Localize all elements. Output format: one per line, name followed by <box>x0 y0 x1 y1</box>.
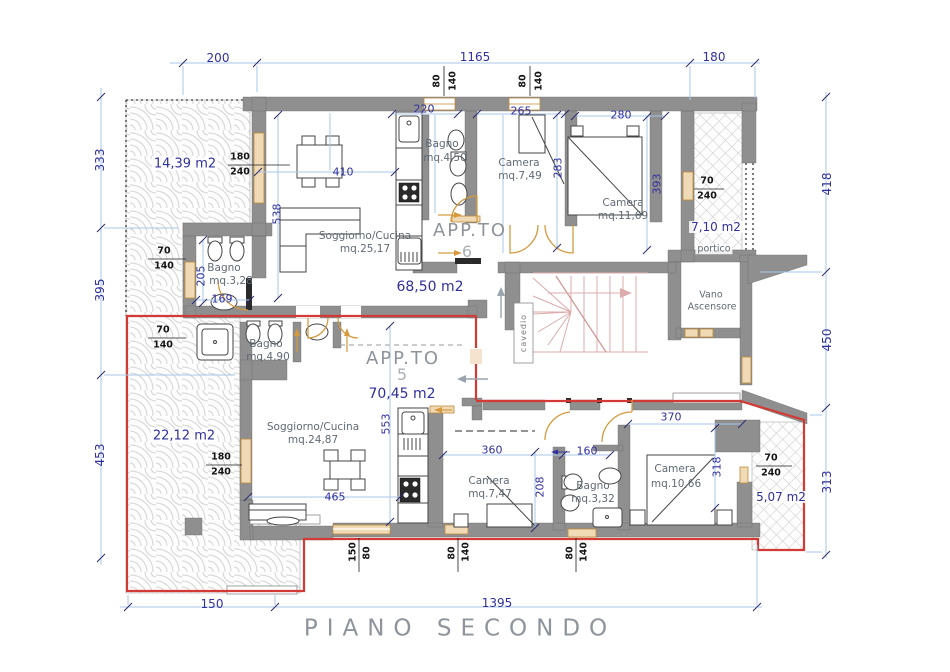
dim-465: 465 <box>325 492 346 503</box>
winspec: 140 <box>448 71 458 91</box>
dim-208: 208 <box>535 477 546 498</box>
room-soggiorno5: Soggiorno/Cucina <box>267 422 359 433</box>
winspec: 80 <box>565 546 575 559</box>
floor-plan-drawing <box>0 0 950 672</box>
balcony-wedge-upper <box>748 255 807 284</box>
shower-bagno332 <box>593 508 622 527</box>
winspec: 240 <box>211 467 231 477</box>
page-title: PIANO SECONDO <box>304 618 616 641</box>
elevator-door <box>685 329 698 337</box>
dim-top-200: 200 <box>207 52 230 64</box>
winspec: 140 <box>534 71 544 91</box>
winspec: 80 <box>362 546 372 559</box>
dim-right-418: 418 <box>821 173 833 196</box>
apt5-area: 70,45 m2 <box>368 387 435 401</box>
room-camera1066: Camera <box>654 464 695 475</box>
winspec: 140 <box>154 261 174 271</box>
dim-left-333: 333 <box>94 149 106 172</box>
winspec: 180 <box>230 152 250 162</box>
apt5-entrance-opening <box>470 349 482 364</box>
toilet-bagno328 <box>208 241 222 261</box>
dim-393: 393 <box>652 174 663 195</box>
kitchen-sink <box>399 116 419 142</box>
winspec: 140 <box>153 340 173 350</box>
winspec: 70 <box>700 176 713 186</box>
terrace-sw-area: 22,12 m2 <box>151 430 217 443</box>
winspec: 240 <box>759 468 783 478</box>
apt6-area: 68,50 m2 <box>396 280 463 294</box>
winspec: 180 <box>211 452 231 462</box>
room-bagno328: Bagno <box>207 263 240 274</box>
dim-bottom-150: 150 <box>201 598 224 610</box>
room-camera749: Camera <box>498 158 539 169</box>
winspec: 80 <box>447 546 457 559</box>
dim-370: 370 <box>661 412 682 423</box>
room-camera1169: Camera <box>602 198 643 209</box>
apt6-number: 6 <box>462 244 472 260</box>
winspec: 70 <box>762 453 779 463</box>
winspec: 70 <box>156 325 169 335</box>
room-bagno450: Bagno <box>425 139 458 150</box>
apt6-title: APP.TO <box>433 222 507 240</box>
dim-left-395: 395 <box>94 279 106 302</box>
winspec: 150 <box>348 542 358 562</box>
winspec: 80 <box>518 74 528 87</box>
winspec: 240 <box>230 167 250 177</box>
winspec: 80 <box>432 74 442 87</box>
door-camera1169 <box>545 225 573 253</box>
dim-right-450: 450 <box>821 329 833 352</box>
door-camera747 <box>545 412 570 440</box>
dim-538: 538 <box>272 204 283 225</box>
winspec: 70 <box>157 246 170 256</box>
room-bagno332: Bagno <box>576 481 609 492</box>
dim-169: 169 <box>212 294 233 305</box>
room-camera747: Camera <box>468 476 509 487</box>
apt5-number: 5 <box>397 367 407 383</box>
dim-top-1165: 1165 <box>460 51 491 63</box>
dim-280: 280 <box>611 110 632 121</box>
dim-220: 220 <box>414 104 435 115</box>
dim-right-313: 313 <box>821 471 833 494</box>
terrace-nw-area: 14,39 m2 <box>152 158 218 171</box>
stove <box>399 183 419 202</box>
wardrobe <box>519 115 545 153</box>
floor-plan-page: 200 1165 180 333 395 453 418 450 313 150… <box>0 0 950 672</box>
dim-410: 410 <box>333 167 354 178</box>
dim-205: 205 <box>196 266 207 287</box>
winspec: 240 <box>697 191 717 201</box>
portico-area: 7,10 m2 <box>689 221 743 233</box>
room-soggiorno6: Soggiorno/Cucina <box>319 231 411 242</box>
winspec: 140 <box>461 542 471 562</box>
dim-265: 265 <box>511 106 532 117</box>
portico-label: portico <box>695 244 732 254</box>
dining-table-apt5 <box>330 461 360 479</box>
door-camera749 <box>510 225 538 253</box>
dim-top-180: 180 <box>703 51 726 63</box>
staircase <box>533 273 648 352</box>
dim-318: 318 <box>712 457 723 478</box>
dim-160: 160 <box>577 446 598 457</box>
bidet <box>451 183 467 205</box>
elevator-label: Vano <box>699 290 722 300</box>
dim-bottom-1395: 1395 <box>482 597 513 609</box>
winspec: 140 <box>579 542 589 562</box>
dim-360: 360 <box>482 445 503 456</box>
dim-283: 283 <box>553 158 564 179</box>
stove-apt5 <box>400 478 420 502</box>
terrace-se-area: 5,07 m2 <box>754 491 808 503</box>
dim-left-453: 453 <box>94 444 106 467</box>
room-bagno490: Bagno <box>249 339 282 350</box>
cavedio-label: cavedio <box>520 314 528 352</box>
dim-553: 553 <box>381 414 392 435</box>
